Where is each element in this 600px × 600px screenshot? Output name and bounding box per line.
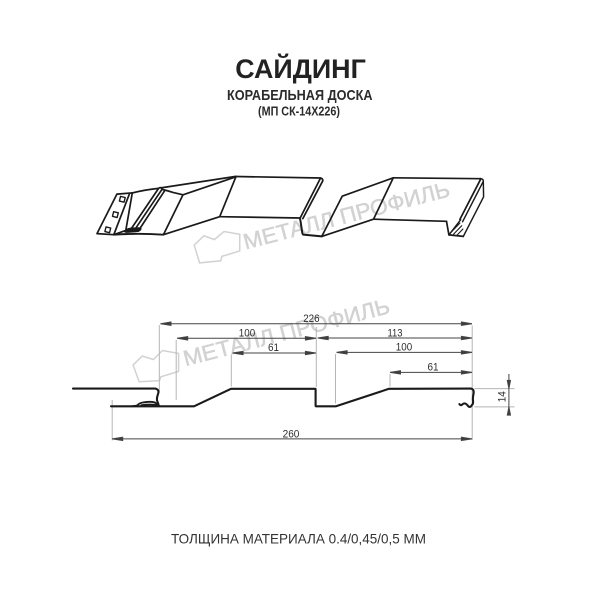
svg-text:КОРАБЕЛЬНАЯ ДОСКА: КОРАБЕЛЬНАЯ ДОСКА xyxy=(227,87,373,104)
svg-text:ТОЛЩИНА МАТЕРИАЛА 0.4/0,45/0,5: ТОЛЩИНА МАТЕРИАЛА 0.4/0,45/0,5 ММ xyxy=(171,530,426,546)
svg-text:САЙДИНГ: САЙДИНГ xyxy=(235,54,365,84)
svg-text:226: 226 xyxy=(303,313,319,325)
svg-text:61: 61 xyxy=(428,362,439,374)
svg-text:113: 113 xyxy=(388,327,403,339)
svg-text:61: 61 xyxy=(268,342,279,354)
svg-text:260: 260 xyxy=(283,429,300,441)
svg-text:14: 14 xyxy=(497,391,509,402)
svg-text:100: 100 xyxy=(239,328,255,340)
svg-text:(МП СК-14Х226): (МП СК-14Х226) xyxy=(258,104,340,118)
svg-text:100: 100 xyxy=(396,342,412,354)
